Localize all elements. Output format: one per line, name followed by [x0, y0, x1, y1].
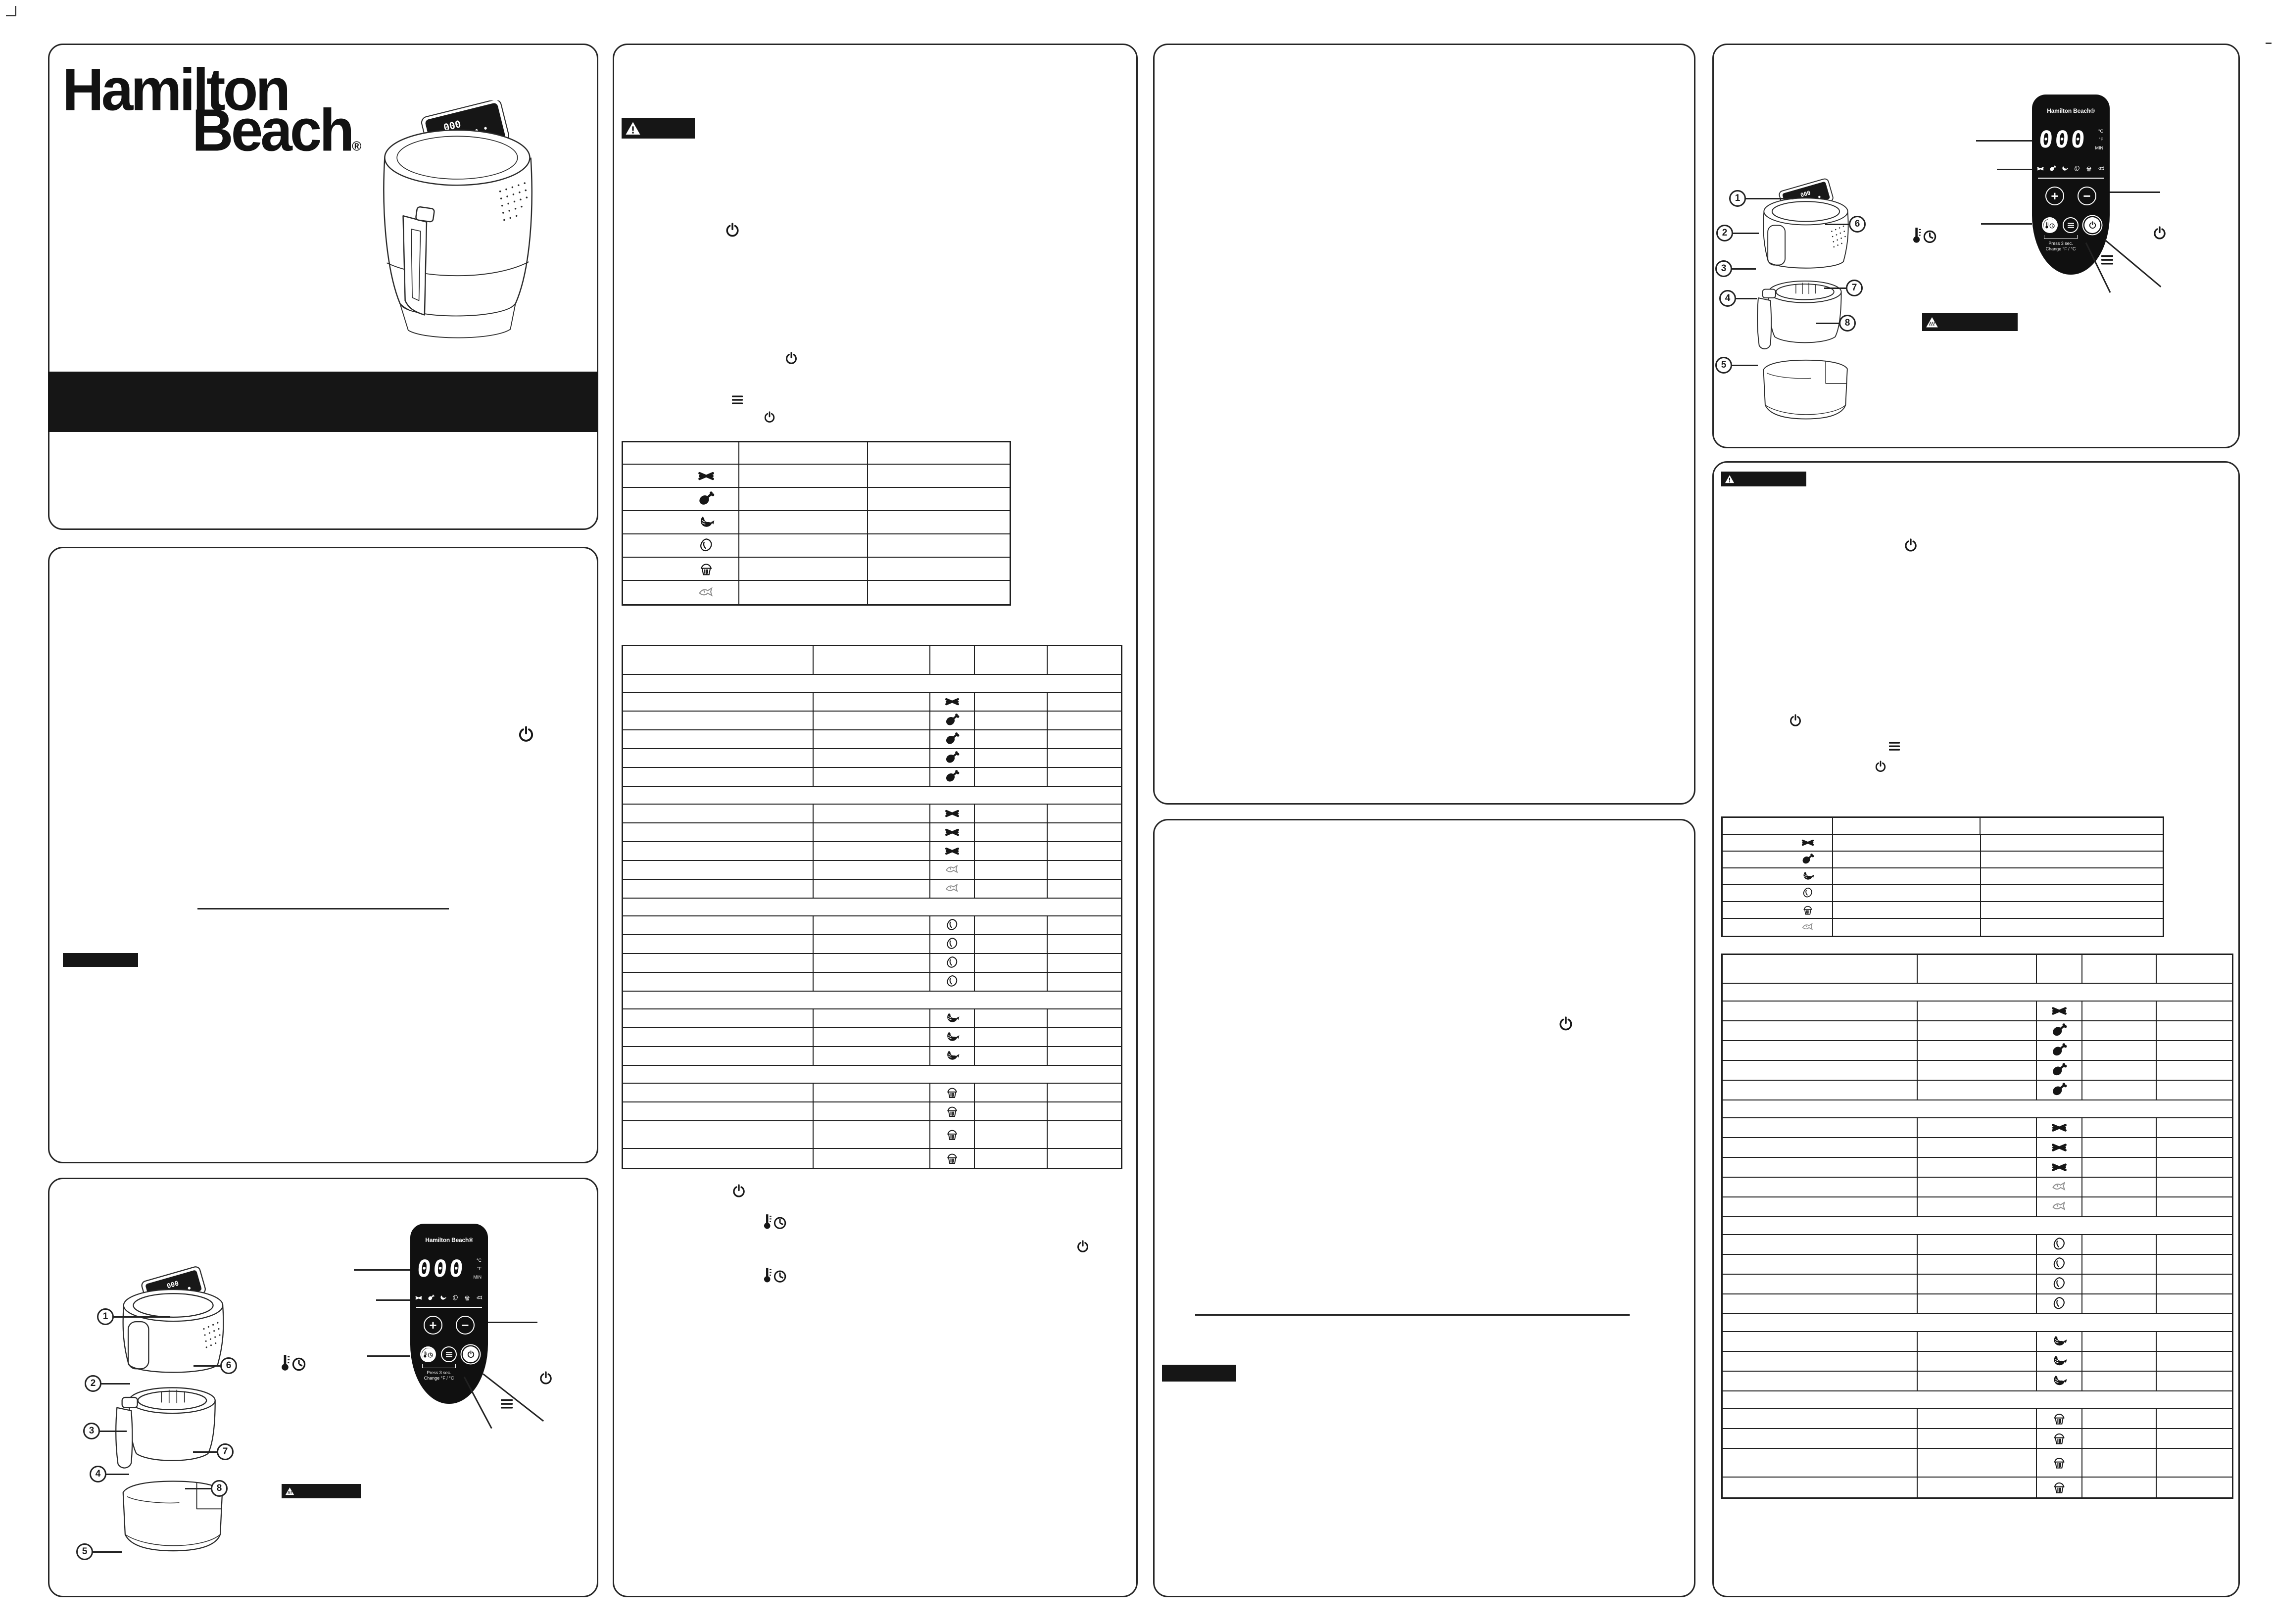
button-bracket [422, 1364, 456, 1368]
callout-5: 5 [1715, 357, 1732, 374]
table-row [1723, 1217, 2232, 1235]
callout-leader-line [1730, 365, 1758, 366]
table-cell [1918, 1041, 2037, 1060]
table-cell [623, 899, 1121, 915]
table-row [1723, 1061, 2232, 1081]
table-cell [2157, 1449, 2232, 1477]
operation-panel [613, 44, 1138, 1597]
text-panel-blank [1153, 44, 1695, 805]
table-cell [1918, 1021, 2037, 1040]
table-cell [623, 768, 814, 786]
fries-icon [945, 844, 960, 859]
fries-icon [2051, 1120, 2067, 1136]
table-cell [2082, 1449, 2157, 1477]
table-row [623, 675, 1121, 693]
drumstick-icon [945, 713, 960, 728]
table-cell [1723, 1391, 2232, 1408]
table-cell [1833, 818, 1981, 834]
table-cell [2037, 1449, 2082, 1477]
table-cell [623, 992, 1121, 1008]
table-cell [930, 1009, 974, 1027]
table-cell [2082, 1255, 2157, 1274]
table-cell [1981, 919, 2163, 936]
table-cell [2157, 1041, 2232, 1060]
table-cell [1918, 1158, 2037, 1177]
table-cell [2157, 1235, 2232, 1254]
table-cell [1048, 1028, 1121, 1046]
muffin-icon [2051, 1455, 2067, 1471]
table-cell [1833, 902, 1981, 918]
table-row [623, 954, 1121, 973]
table-cell [1723, 818, 1833, 834]
table-cell [2037, 1429, 2082, 1448]
warning-chip [1721, 472, 1806, 486]
leader-line [1997, 169, 2032, 170]
fish-icon [945, 862, 960, 877]
table-cell [1048, 916, 1121, 934]
table-cell [2082, 1081, 2157, 1099]
cook-chart-table [1721, 954, 2233, 1499]
table-cell [814, 1047, 931, 1065]
table-cell [2157, 1352, 2232, 1371]
table-cell [2082, 1061, 2157, 1080]
table-cell [623, 1047, 814, 1065]
table-cell [1048, 1047, 1121, 1065]
table-cell [1048, 1084, 1121, 1101]
table-row [623, 488, 1010, 511]
table-row [1723, 1409, 2232, 1429]
table-cell [930, 1047, 974, 1065]
table-cell [1833, 852, 1981, 867]
table-cell [2037, 1478, 2082, 1497]
table-cell [2037, 1409, 2082, 1428]
table-cell [930, 954, 974, 972]
table-cell [814, 861, 931, 879]
callout-3: 3 [83, 1423, 100, 1439]
table-cell [1048, 954, 1121, 972]
shrimp-icon [2061, 165, 2068, 172]
table-cell [1918, 1372, 2037, 1390]
table-cell [1723, 868, 1833, 884]
table-cell [2157, 1021, 2232, 1040]
fish-icon [2051, 1179, 2067, 1195]
table-cell [2037, 1118, 2082, 1137]
hint-text: Press 3 sec. Change °F / °C [2036, 241, 2085, 252]
temp-time-button [420, 1346, 436, 1362]
table-cell [930, 1149, 974, 1168]
fries-icon [698, 468, 715, 484]
table-cell [1723, 1332, 1918, 1351]
table-row [623, 511, 1010, 534]
table-cell [1723, 1235, 1918, 1254]
callout-leader-line [1734, 298, 1757, 299]
leader-line [1976, 140, 2032, 142]
table-cell [975, 935, 1048, 953]
celsius-label: °C [474, 1256, 482, 1265]
table-cell [623, 1102, 814, 1120]
muffin-icon [945, 1085, 960, 1100]
table-cell [623, 1066, 1121, 1083]
table-row [1723, 1178, 2232, 1197]
thermometer-clock-icon [763, 1266, 786, 1283]
mode-icon-row [2037, 165, 2105, 172]
unit-labels: °C °F MIN [2095, 127, 2104, 152]
table-cell [1918, 1294, 2037, 1313]
callout-8: 8 [211, 1480, 228, 1497]
table-row [623, 899, 1121, 916]
drumstick-icon [2051, 1043, 2067, 1058]
fries-icon [1801, 836, 1814, 849]
callout-7: 7 [1846, 280, 1863, 296]
table-cell [1981, 852, 2163, 867]
thermometer-clock-icon [763, 1213, 786, 1230]
control-panel-brand: Hamilton Beach® [410, 1237, 488, 1243]
table-row [623, 581, 1010, 604]
table-cell [930, 861, 974, 879]
table-cell [930, 1121, 974, 1148]
callout-8: 8 [1839, 315, 1856, 332]
muffin-icon [2051, 1431, 2067, 1446]
table-cell [1981, 868, 2163, 884]
table-cell [814, 935, 931, 953]
table-cell [1048, 861, 1121, 879]
table-row [1723, 1449, 2232, 1478]
table-cell [1723, 835, 1833, 851]
table-row [623, 1009, 1121, 1028]
table-cell [1723, 1158, 1918, 1177]
table-row [1723, 1391, 2232, 1409]
table-cell [2037, 1235, 2082, 1254]
power-button [463, 1346, 479, 1362]
drumstick-icon [2051, 1023, 2067, 1039]
air-fryer-illustration [370, 100, 546, 356]
table-cell [1918, 1255, 2037, 1274]
table-row [1723, 1352, 2232, 1372]
table-row [1723, 1429, 2232, 1449]
table-cell [2157, 1002, 2232, 1020]
table-cell [623, 1121, 814, 1148]
cover-title-bar [48, 372, 598, 432]
table-row [1723, 835, 2163, 852]
plus-button: + [2045, 187, 2064, 205]
exploded-parts-illustration [1741, 178, 1871, 425]
power-button [2084, 217, 2100, 233]
steak-icon [2051, 1276, 2067, 1292]
table-cell [2037, 1294, 2082, 1313]
table-cell [930, 916, 974, 934]
muffin-icon [698, 561, 715, 577]
fries-icon [415, 1294, 422, 1301]
shrimp-icon [945, 1011, 960, 1026]
table-cell [2082, 1294, 2157, 1313]
table-cell [1048, 823, 1121, 841]
table-cell [975, 712, 1048, 729]
table-cell [930, 880, 974, 898]
table-cell [1048, 730, 1121, 748]
table-cell [1918, 1002, 2037, 1020]
table-cell [1723, 1429, 1918, 1448]
table-cell [2157, 955, 2232, 983]
table-cell [739, 488, 868, 510]
muffin-icon [945, 1151, 960, 1166]
hot-surface-icon [1926, 316, 1938, 329]
leader-line [367, 1355, 410, 1357]
parts-features-panel: Hamilton Beach® 000 °C °F MIN + − Press … [48, 1178, 598, 1597]
table-cell [2037, 1061, 2082, 1080]
table-cell [975, 880, 1048, 898]
table-cell [975, 916, 1048, 934]
shrimp-icon [945, 1049, 960, 1063]
table-cell [1918, 1332, 2037, 1351]
callout-leader-line [1825, 224, 1851, 225]
table-cell [814, 842, 931, 860]
table-cell [975, 693, 1048, 711]
hot-surface-chip [282, 1484, 361, 1498]
table-cell [1723, 919, 1833, 936]
table-cell [975, 1149, 1048, 1168]
table-cell [1723, 1478, 1918, 1497]
table-cell [1723, 1217, 2232, 1234]
callout-1: 1 [97, 1308, 114, 1325]
important-chip [63, 953, 138, 967]
table-cell [1723, 885, 1833, 901]
table-cell [2037, 1352, 2082, 1371]
callout-3: 3 [1715, 260, 1732, 277]
table-cell [1918, 1235, 2037, 1254]
table-cell [2082, 1197, 2157, 1216]
table-row [1723, 1138, 2232, 1158]
table-cell [1723, 1061, 1918, 1080]
table-row [1723, 1041, 2232, 1061]
table-cell [2082, 1021, 2157, 1040]
callout-leader-line [193, 1365, 222, 1367]
power-icon [517, 726, 535, 744]
table-cell [1723, 1002, 1918, 1020]
steak-icon [1801, 887, 1814, 900]
callout-2: 2 [1716, 225, 1733, 241]
table-cell [623, 954, 814, 972]
steak-icon [945, 918, 960, 933]
table-cell [2037, 1081, 2082, 1099]
table-cell [1833, 868, 1981, 884]
table-cell [1981, 835, 2163, 851]
table-cell [2082, 1138, 2157, 1157]
crop-mark [2266, 43, 2272, 44]
table-cell [2082, 1332, 2157, 1351]
table-cell [814, 973, 931, 991]
power-icon [725, 223, 740, 239]
power-icon [731, 1184, 746, 1199]
table-row [1723, 1235, 2232, 1255]
table-cell [868, 558, 1010, 580]
table-cell [930, 768, 974, 786]
menu-button [2063, 217, 2079, 233]
divider [2038, 178, 2104, 179]
table-cell [623, 646, 814, 674]
hot-surface-chip [1922, 313, 2018, 331]
shrimp-icon [2051, 1353, 2067, 1369]
table-cell [623, 880, 814, 898]
table-cell [930, 823, 974, 841]
fish-icon [2051, 1199, 2067, 1215]
menu-button [441, 1346, 457, 1362]
callout-leader-line [1744, 198, 1793, 199]
table-cell [868, 534, 1010, 557]
leader-line [376, 1299, 410, 1301]
crop-mark [6, 15, 16, 16]
table-cell [623, 442, 739, 464]
table-cell [1048, 805, 1121, 822]
table-cell [623, 488, 739, 510]
table-cell [2037, 1275, 2082, 1293]
table-cell [1723, 1275, 1918, 1293]
plus-button: + [424, 1316, 442, 1335]
table-cell [1918, 1197, 2037, 1216]
table-cell [2082, 1275, 2157, 1293]
table-cell [814, 805, 931, 822]
table-row [1723, 1478, 2232, 1497]
table-cell [975, 1047, 1048, 1065]
table-cell [2082, 955, 2157, 983]
callout-7: 7 [217, 1443, 234, 1460]
muffin-icon [1801, 904, 1814, 916]
table-row [623, 916, 1121, 935]
table-cell [1048, 768, 1121, 786]
table-cell [1918, 1081, 2037, 1099]
table-cell [814, 693, 931, 711]
control-panel-brand: Hamilton Beach® [2032, 107, 2110, 114]
table-cell [2082, 1118, 2157, 1137]
fish-icon [945, 881, 960, 896]
table-cell [868, 581, 1010, 604]
table-row [1723, 1081, 2232, 1100]
text-panel-consumer-safety [48, 547, 598, 1163]
table-row [1723, 1372, 2232, 1391]
hot-surface-icon [285, 1486, 294, 1496]
table-cell [868, 488, 1010, 510]
thermometer-clock-icon [1912, 226, 1936, 243]
table-cell [1981, 902, 2163, 918]
power-icon [1076, 1240, 1090, 1254]
table-cell [2157, 1197, 2232, 1216]
table-row [1723, 1314, 2232, 1332]
table-cell [739, 558, 868, 580]
cover-panel: Hamilton Beach® [48, 44, 598, 530]
callout-leader-line [112, 1316, 170, 1318]
table-row [623, 973, 1121, 992]
table-row [1723, 852, 2163, 868]
table-cell [1723, 1041, 1918, 1060]
registered-mark: ® [352, 139, 361, 154]
table-row [1723, 1002, 2232, 1021]
table-cell [2037, 955, 2082, 983]
table-cell [975, 842, 1048, 860]
table-cell [623, 916, 814, 934]
control-panel-illustration: Hamilton Beach® 000 °C °F MIN + − Press … [410, 1224, 488, 1404]
power-icon [2152, 226, 2167, 241]
table-row [623, 534, 1010, 558]
table-cell [930, 646, 974, 674]
table-cell [1918, 955, 2037, 983]
table-cell [623, 534, 739, 557]
table-cell [623, 749, 814, 767]
table-cell [1048, 693, 1121, 711]
table-cell [814, 712, 931, 729]
table-cell [623, 787, 1121, 804]
callout-leader-line [1730, 268, 1756, 270]
steak-icon [2051, 1256, 2067, 1272]
table-cell [814, 1149, 931, 1168]
table-row [1723, 868, 2163, 885]
table-cell [975, 1102, 1048, 1120]
table-cell [623, 511, 739, 533]
table-cell [623, 693, 814, 711]
power-icon [1874, 761, 1887, 773]
table-row [623, 1084, 1121, 1102]
power-icon [1789, 714, 1802, 728]
table-cell [1981, 818, 2163, 834]
manual-sheet: { "brand": { "logo_line1": "Hamilton", "… [0, 0, 2273, 1624]
shrimp-icon [1801, 870, 1814, 883]
fries-icon [2051, 1140, 2067, 1155]
table-row [1723, 1275, 2232, 1294]
muffin-icon [2051, 1480, 2067, 1495]
table-cell [1048, 973, 1121, 991]
table-cell [975, 1084, 1048, 1101]
table-cell [1723, 1100, 2232, 1117]
table-cell [1918, 1429, 2037, 1448]
table-cell [1833, 835, 1981, 851]
table-cell [2037, 1332, 2082, 1351]
menu-icon [1889, 741, 1900, 752]
callout-leader-line [99, 1383, 130, 1385]
table-cell [1723, 1118, 1918, 1137]
muffin-icon [2051, 1411, 2067, 1427]
table-cell [1918, 1178, 2037, 1196]
brand-logo-line2: Beach® [192, 105, 361, 171]
table-cell [930, 730, 974, 748]
table-cell [1048, 1149, 1121, 1168]
table-cell [739, 511, 868, 533]
power-icon [763, 411, 776, 424]
table-cell [1833, 919, 1981, 936]
steak-icon [945, 955, 960, 970]
table-cell [2157, 1081, 2232, 1099]
table-cell [623, 823, 814, 841]
table-row [623, 693, 1121, 712]
table-cell [930, 1028, 974, 1046]
fish-icon [2098, 165, 2105, 172]
underline-rule [197, 908, 449, 909]
fish-icon [698, 584, 715, 601]
table-cell [930, 693, 974, 711]
table-row [1723, 1197, 2232, 1217]
warning-chip [622, 118, 695, 139]
table-cell [2157, 1255, 2232, 1274]
table-cell [2037, 1372, 2082, 1390]
steak-icon [2051, 1296, 2067, 1312]
callout-leader-line [1816, 323, 1841, 324]
crop-mark [15, 6, 16, 16]
shrimp-icon [2051, 1373, 2067, 1389]
steak-icon [945, 974, 960, 989]
table-cell [2082, 1478, 2157, 1497]
table-cell [739, 465, 868, 487]
fries-icon [2051, 1003, 2067, 1019]
table-cell [623, 842, 814, 860]
button-bracket [2044, 235, 2078, 239]
table-cell [623, 730, 814, 748]
